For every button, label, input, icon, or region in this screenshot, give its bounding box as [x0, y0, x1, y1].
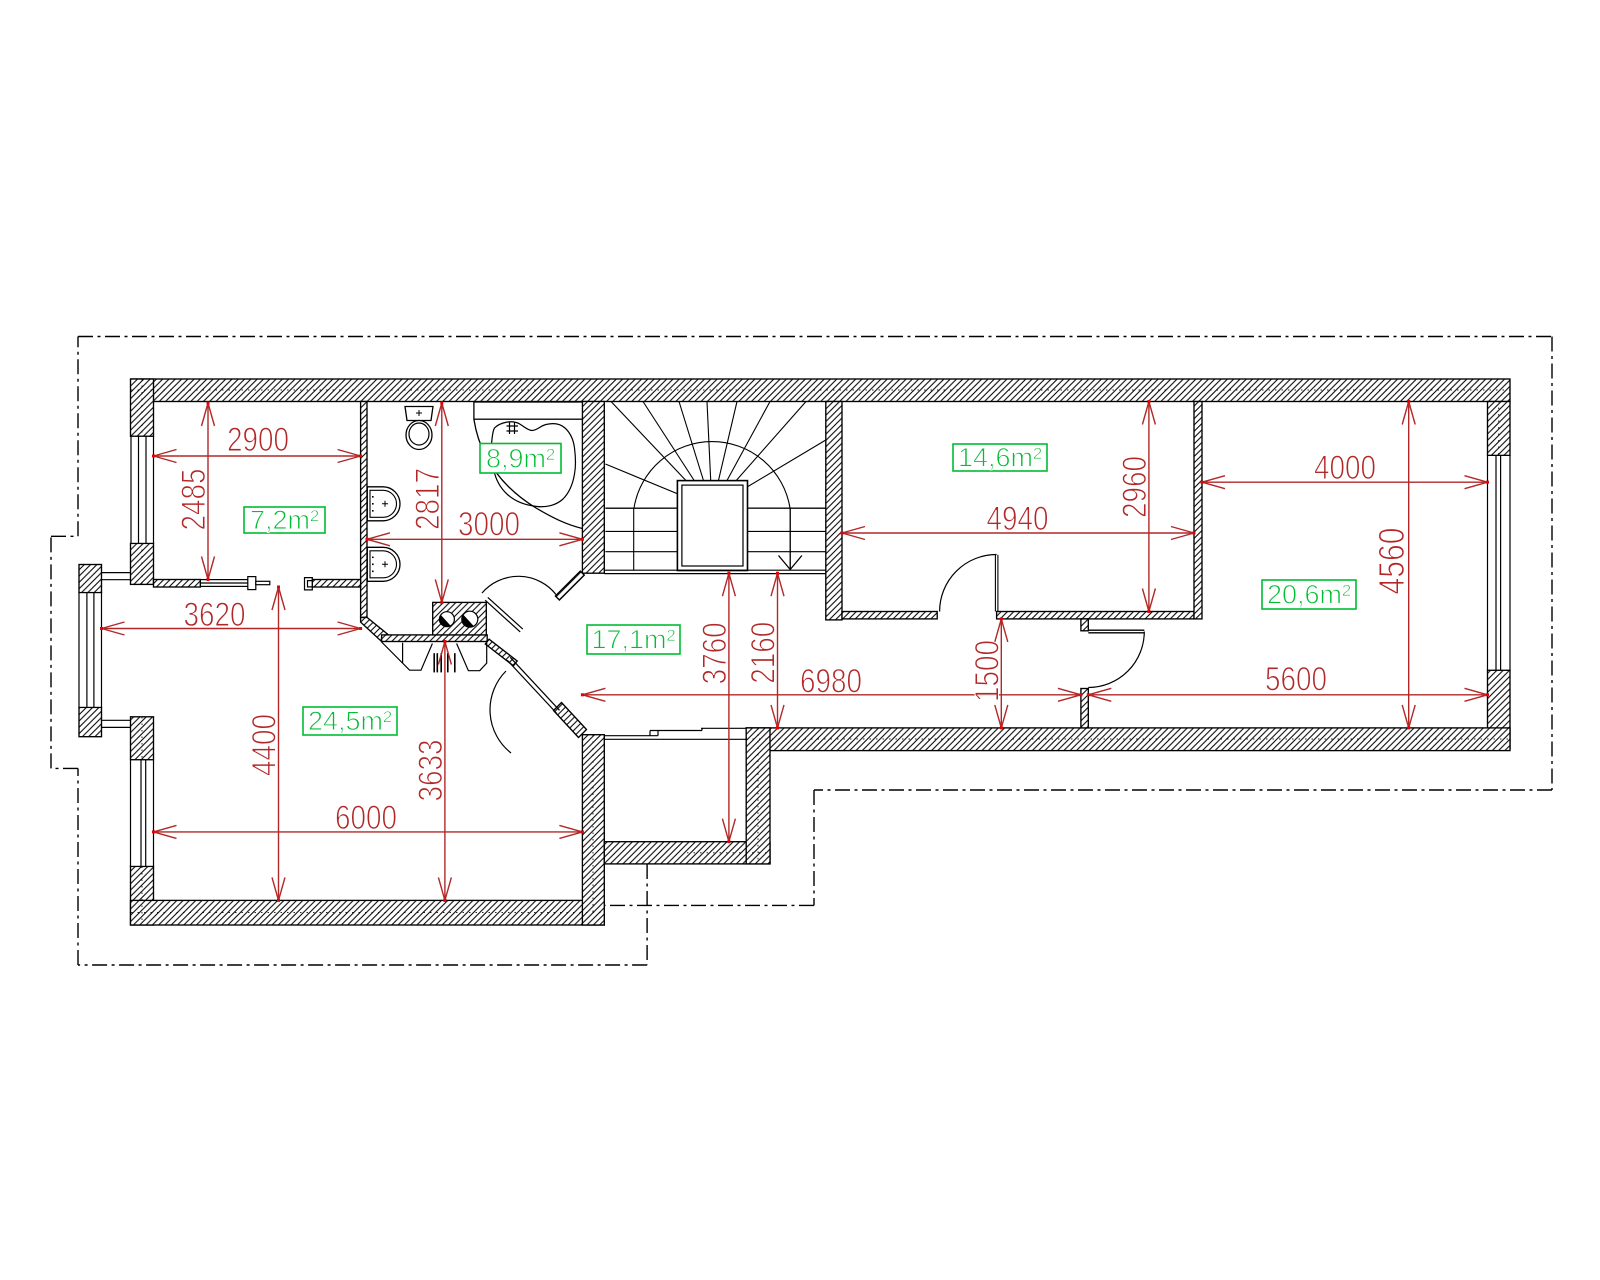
svg-text:6000: 6000	[335, 799, 397, 837]
svg-text:3620: 3620	[184, 596, 246, 634]
svg-text:3000: 3000	[458, 506, 520, 544]
svg-text:4940: 4940	[987, 500, 1049, 538]
svg-text:4000: 4000	[1314, 449, 1376, 487]
svg-text:4400: 4400	[245, 714, 283, 776]
svg-text:14,6m²: 14,6m²	[958, 443, 1042, 473]
svg-text:2485: 2485	[175, 469, 213, 531]
svg-text:7,2m²: 7,2m²	[250, 505, 319, 535]
svg-text:6980: 6980	[800, 663, 862, 701]
svg-text:3633: 3633	[412, 740, 450, 802]
svg-text:17,1m²: 17,1m²	[591, 625, 675, 655]
svg-text:2960: 2960	[1116, 456, 1154, 518]
svg-text:24,5m²: 24,5m²	[308, 706, 392, 736]
svg-text:8,9m²: 8,9m²	[486, 443, 555, 473]
svg-text:1500: 1500	[968, 640, 1006, 702]
svg-text:3760: 3760	[696, 622, 734, 684]
svg-text:2817: 2817	[409, 468, 447, 530]
svg-text:2900: 2900	[227, 421, 289, 459]
svg-text:4560: 4560	[1371, 528, 1412, 595]
svg-text:5600: 5600	[1265, 661, 1327, 699]
svg-text:2160: 2160	[745, 622, 783, 684]
svg-text:20,6m²: 20,6m²	[1267, 580, 1351, 610]
